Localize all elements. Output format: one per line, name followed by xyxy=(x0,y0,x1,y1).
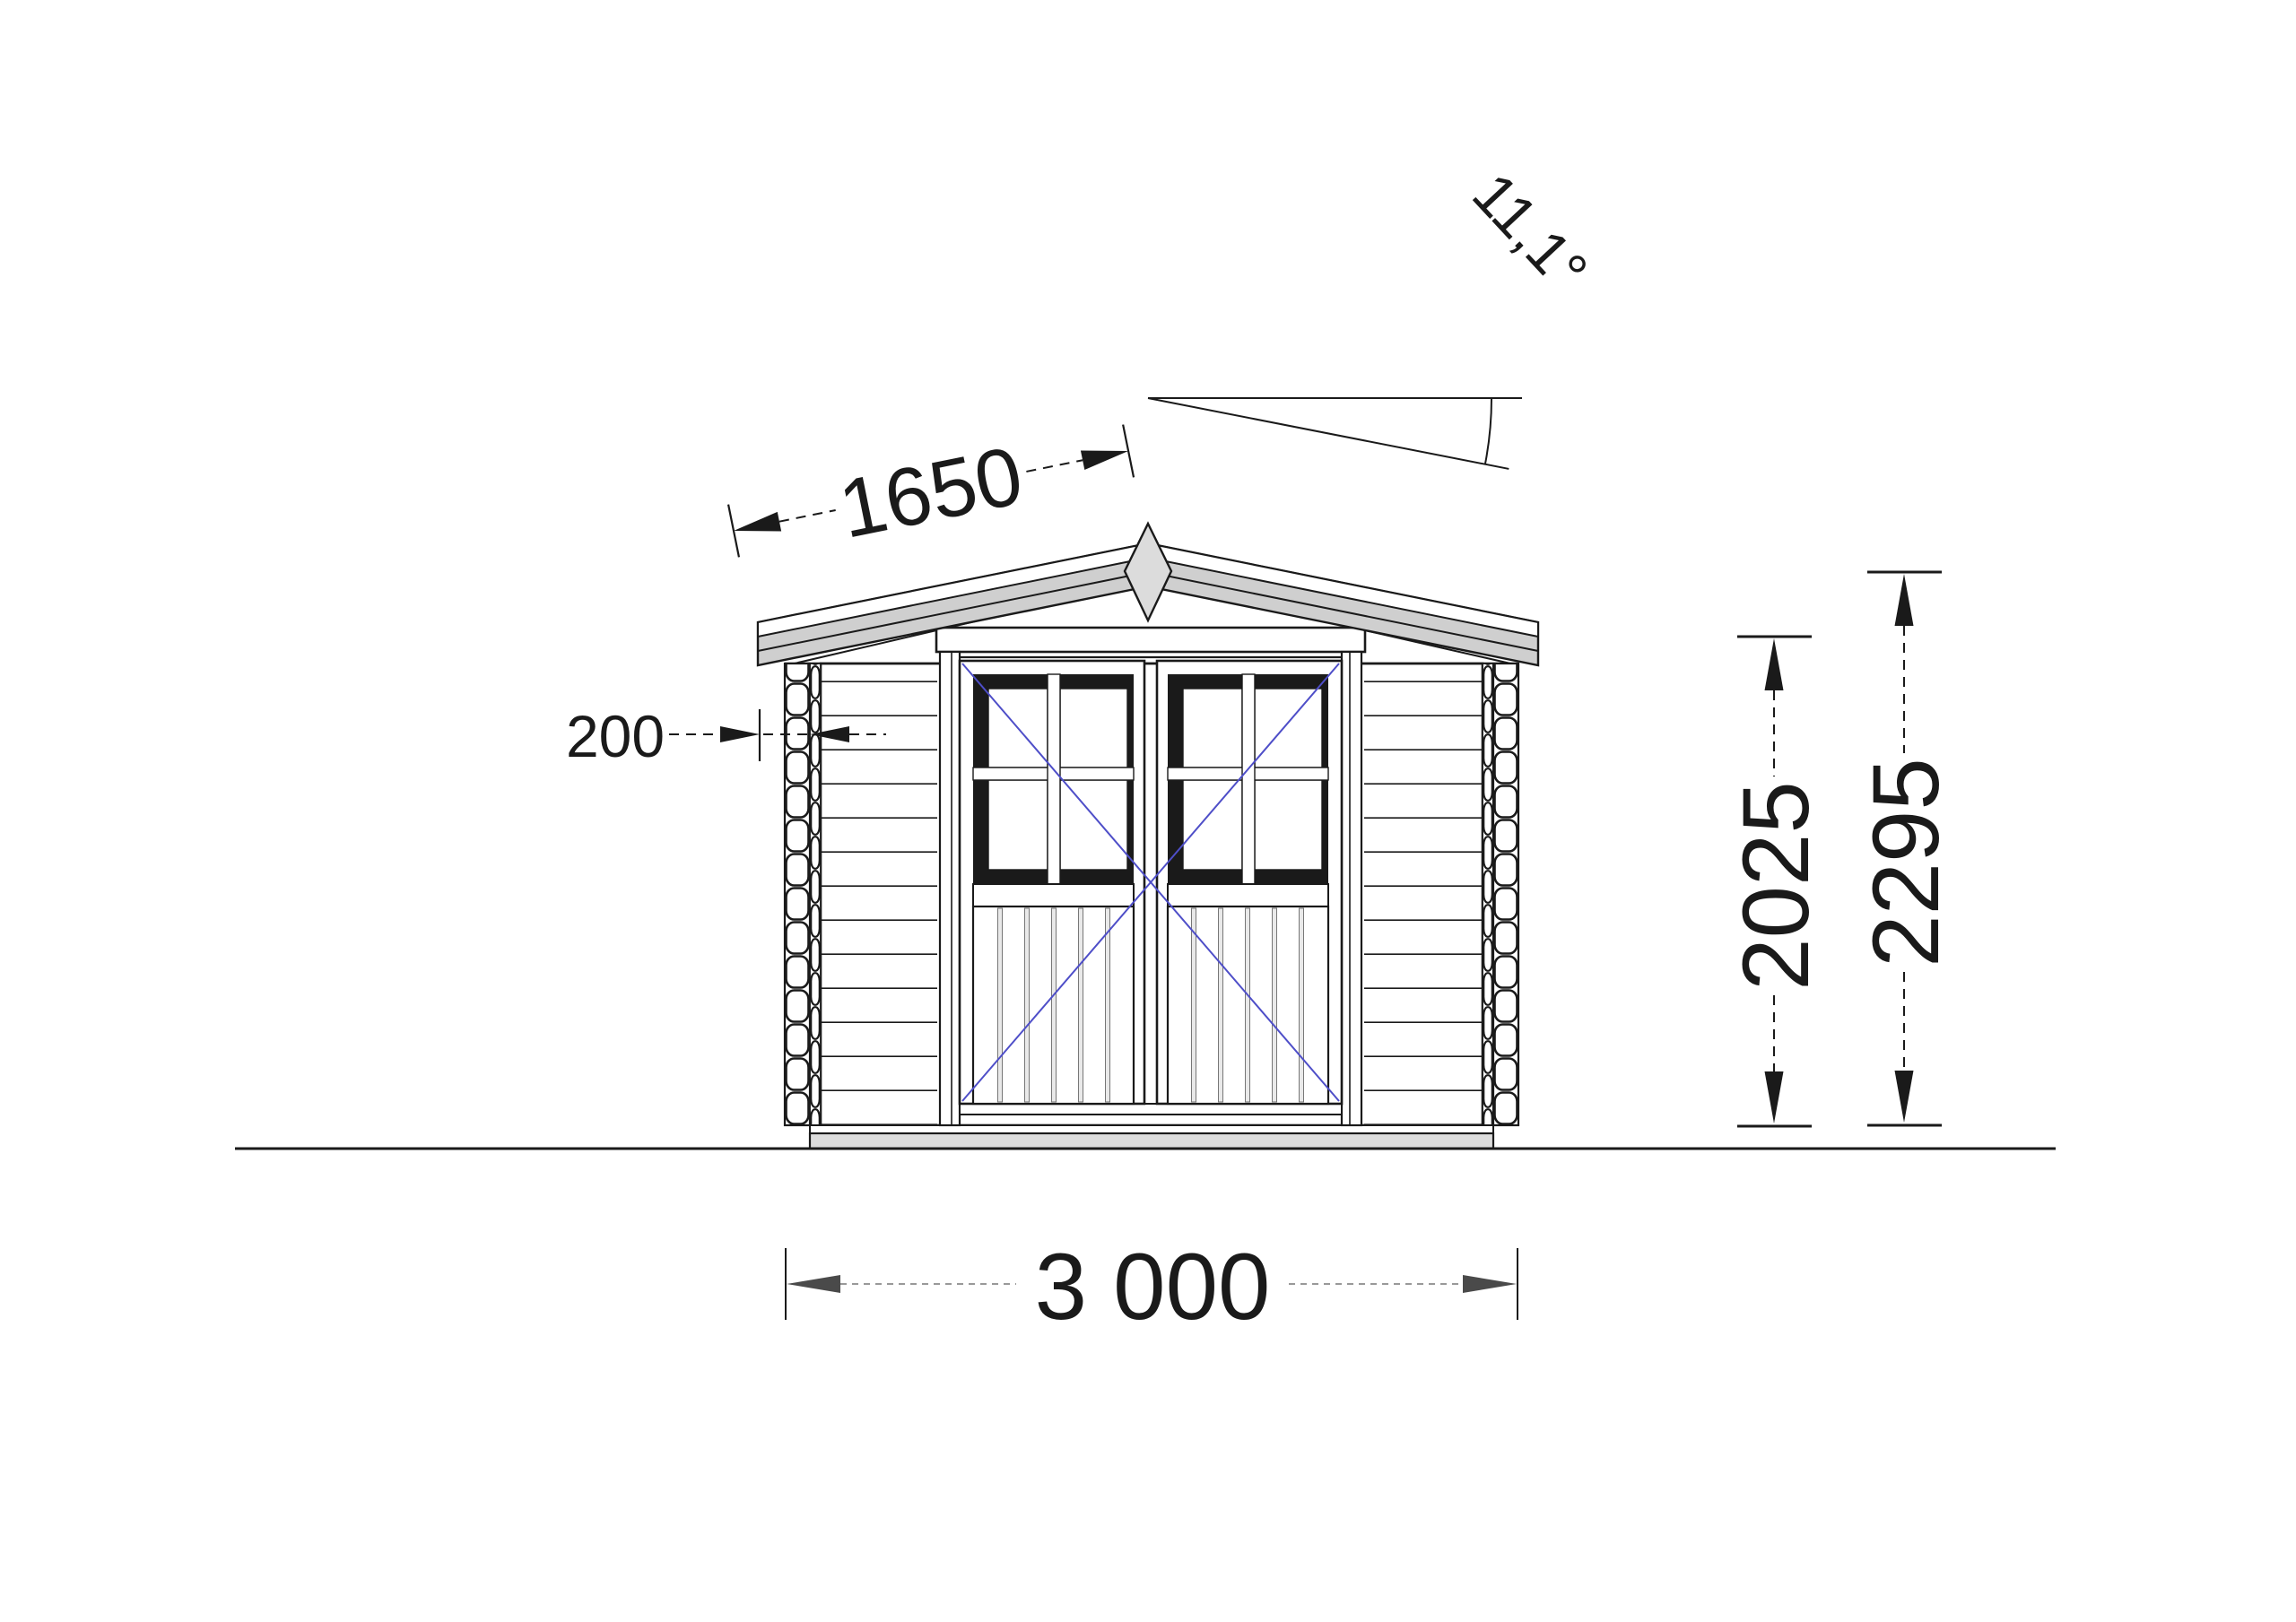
window-pane xyxy=(1255,689,1322,768)
lock-rail xyxy=(973,884,1134,906)
window-pane xyxy=(1183,780,1242,870)
door-architrave-left xyxy=(940,652,960,1125)
dim-line xyxy=(779,510,836,522)
dim-arrow-down xyxy=(1895,1071,1914,1123)
dim-label-roof-angle: 11,1° xyxy=(1460,160,1600,304)
log-siding-right xyxy=(1364,664,1482,1124)
dim-arrow-up xyxy=(1765,638,1784,690)
door-leaf-left[interactable] xyxy=(960,661,1144,1104)
dim-arrow-down xyxy=(1765,1071,1784,1123)
dimension-roof-angle: 11,1° xyxy=(1148,160,1600,469)
angle-arc xyxy=(1485,398,1492,464)
door-lintel xyxy=(936,628,1365,652)
dim-arrow-right-pointing xyxy=(720,726,760,742)
shed-building xyxy=(758,524,1538,1149)
foundation-slab xyxy=(810,1133,1493,1149)
dim-arrow-up xyxy=(1895,574,1914,626)
dimension-overall-width: 3 000 xyxy=(786,1235,1518,1340)
window-pane xyxy=(1183,689,1242,768)
window-pane xyxy=(988,780,1048,870)
dim-arrow-right xyxy=(1463,1275,1517,1293)
dimension-total-height: 2295 xyxy=(1854,572,1959,1125)
dim-label-wall-height: 2025 xyxy=(1724,781,1829,991)
lock-rail xyxy=(1168,884,1328,906)
dim-line xyxy=(1026,460,1083,472)
dim-label-slope-length: 1650 xyxy=(832,429,1031,556)
door-threshold xyxy=(960,1104,1342,1115)
corner-logs-right xyxy=(1483,664,1518,1125)
glazing-mullion xyxy=(1048,674,1060,884)
window-pane xyxy=(1255,780,1322,870)
dim-label-overall-width: 3 000 xyxy=(1035,1235,1271,1340)
dimension-slope-length: 1650 xyxy=(725,408,1137,577)
door-architrave-right xyxy=(1342,652,1361,1125)
elevation-drawing: 1650 11,1° 200 2025 2295 xyxy=(0,0,2296,1622)
dim-label-wall-offset: 200 xyxy=(566,703,665,769)
glazing-mullion xyxy=(1242,674,1255,884)
drawing-page: 1650 11,1° 200 2025 2295 xyxy=(0,0,2296,1622)
dim-arrow-left xyxy=(732,512,781,541)
window-pane xyxy=(1060,780,1127,870)
dimension-wall-height: 2025 xyxy=(1724,637,1829,1126)
door-leaf-right[interactable] xyxy=(1157,661,1342,1104)
dim-arrow-left xyxy=(787,1275,840,1293)
base-trim xyxy=(810,1125,1493,1133)
dim-arrow-right xyxy=(1081,441,1130,470)
window-pane xyxy=(1060,689,1127,768)
angle-slope-ray xyxy=(1148,398,1509,469)
corner-logs-left xyxy=(785,664,821,1125)
dim-label-total-height: 2295 xyxy=(1854,758,1959,967)
